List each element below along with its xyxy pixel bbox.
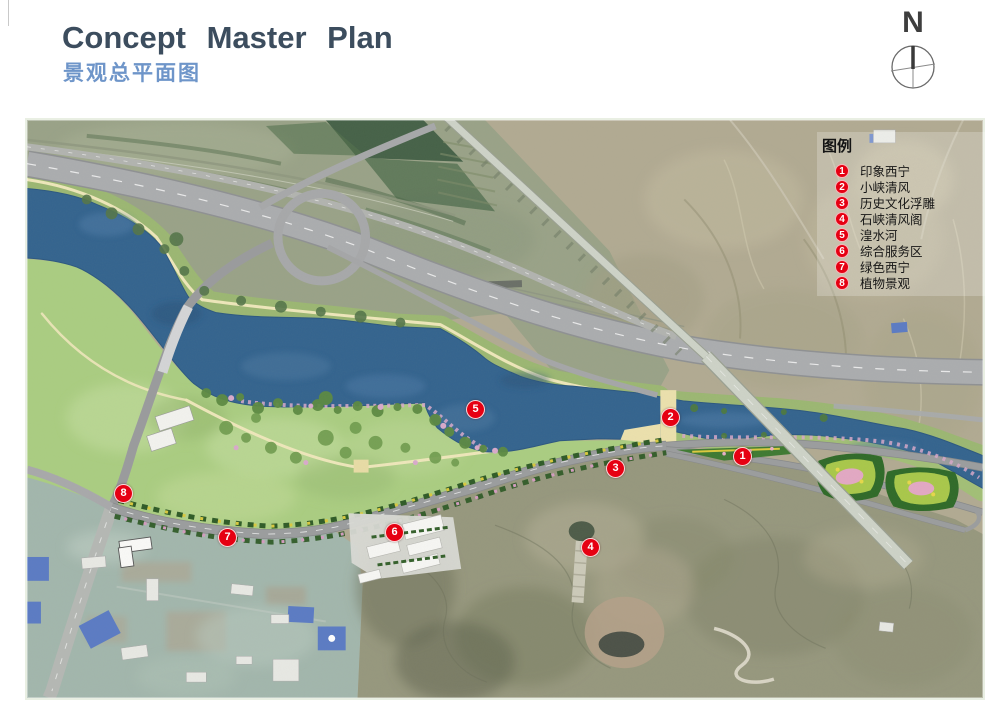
legend-item-number-badge: 8 [835, 276, 849, 290]
presentation-page: { "header": { "title": "Concept Master P… [0, 0, 1000, 706]
legend-item: 2 小峡清风 [835, 179, 983, 194]
map-legend: 图例 1 印象西宁 2 小峡清风 3 历史文化浮雕 4 石峡清风阁 5 湟水河 … [817, 132, 987, 296]
north-indicator: N [885, 8, 941, 99]
title-block: Concept Master Plan 景观总平面图 [62, 22, 393, 87]
legend-item: 4 石峡清风阁 [835, 211, 983, 226]
legend-item: 6 综合服务区 [835, 243, 983, 258]
legend-item-number-badge: 4 [835, 212, 849, 226]
legend-item-number-badge: 1 [835, 164, 849, 178]
legend-item: 7 绿色西宁 [835, 259, 983, 274]
north-label: N [885, 8, 941, 38]
legend-item-label: 植物景观 [860, 273, 910, 292]
legend-title: 图例 [822, 135, 983, 156]
page-corner-tick [8, 0, 9, 26]
legend-item-number-badge: 6 [835, 244, 849, 258]
legend-item-number-badge: 2 [835, 180, 849, 194]
page-title: Concept Master Plan [62, 22, 393, 55]
legend-item-number-badge: 3 [835, 196, 849, 210]
legend-item: 8 植物景观 [835, 275, 983, 290]
legend-item: 1 印象西宁 [835, 163, 983, 178]
page-subtitle: 景观总平面图 [63, 57, 393, 87]
legend-rows: 1 印象西宁 2 小峡清风 3 历史文化浮雕 4 石峡清风阁 5 湟水河 6 综… [821, 163, 983, 290]
legend-item-number-badge: 7 [835, 260, 849, 274]
legend-item-number-badge: 5 [835, 228, 849, 242]
legend-item: 3 历史文化浮雕 [835, 195, 983, 210]
legend-item: 5 湟水河 [835, 227, 983, 242]
north-compass-icon [885, 38, 941, 94]
master-plan-map: 12345678 图例 1 印象西宁 2 小峡清风 3 历史文化浮雕 4 石峡清… [25, 118, 985, 700]
